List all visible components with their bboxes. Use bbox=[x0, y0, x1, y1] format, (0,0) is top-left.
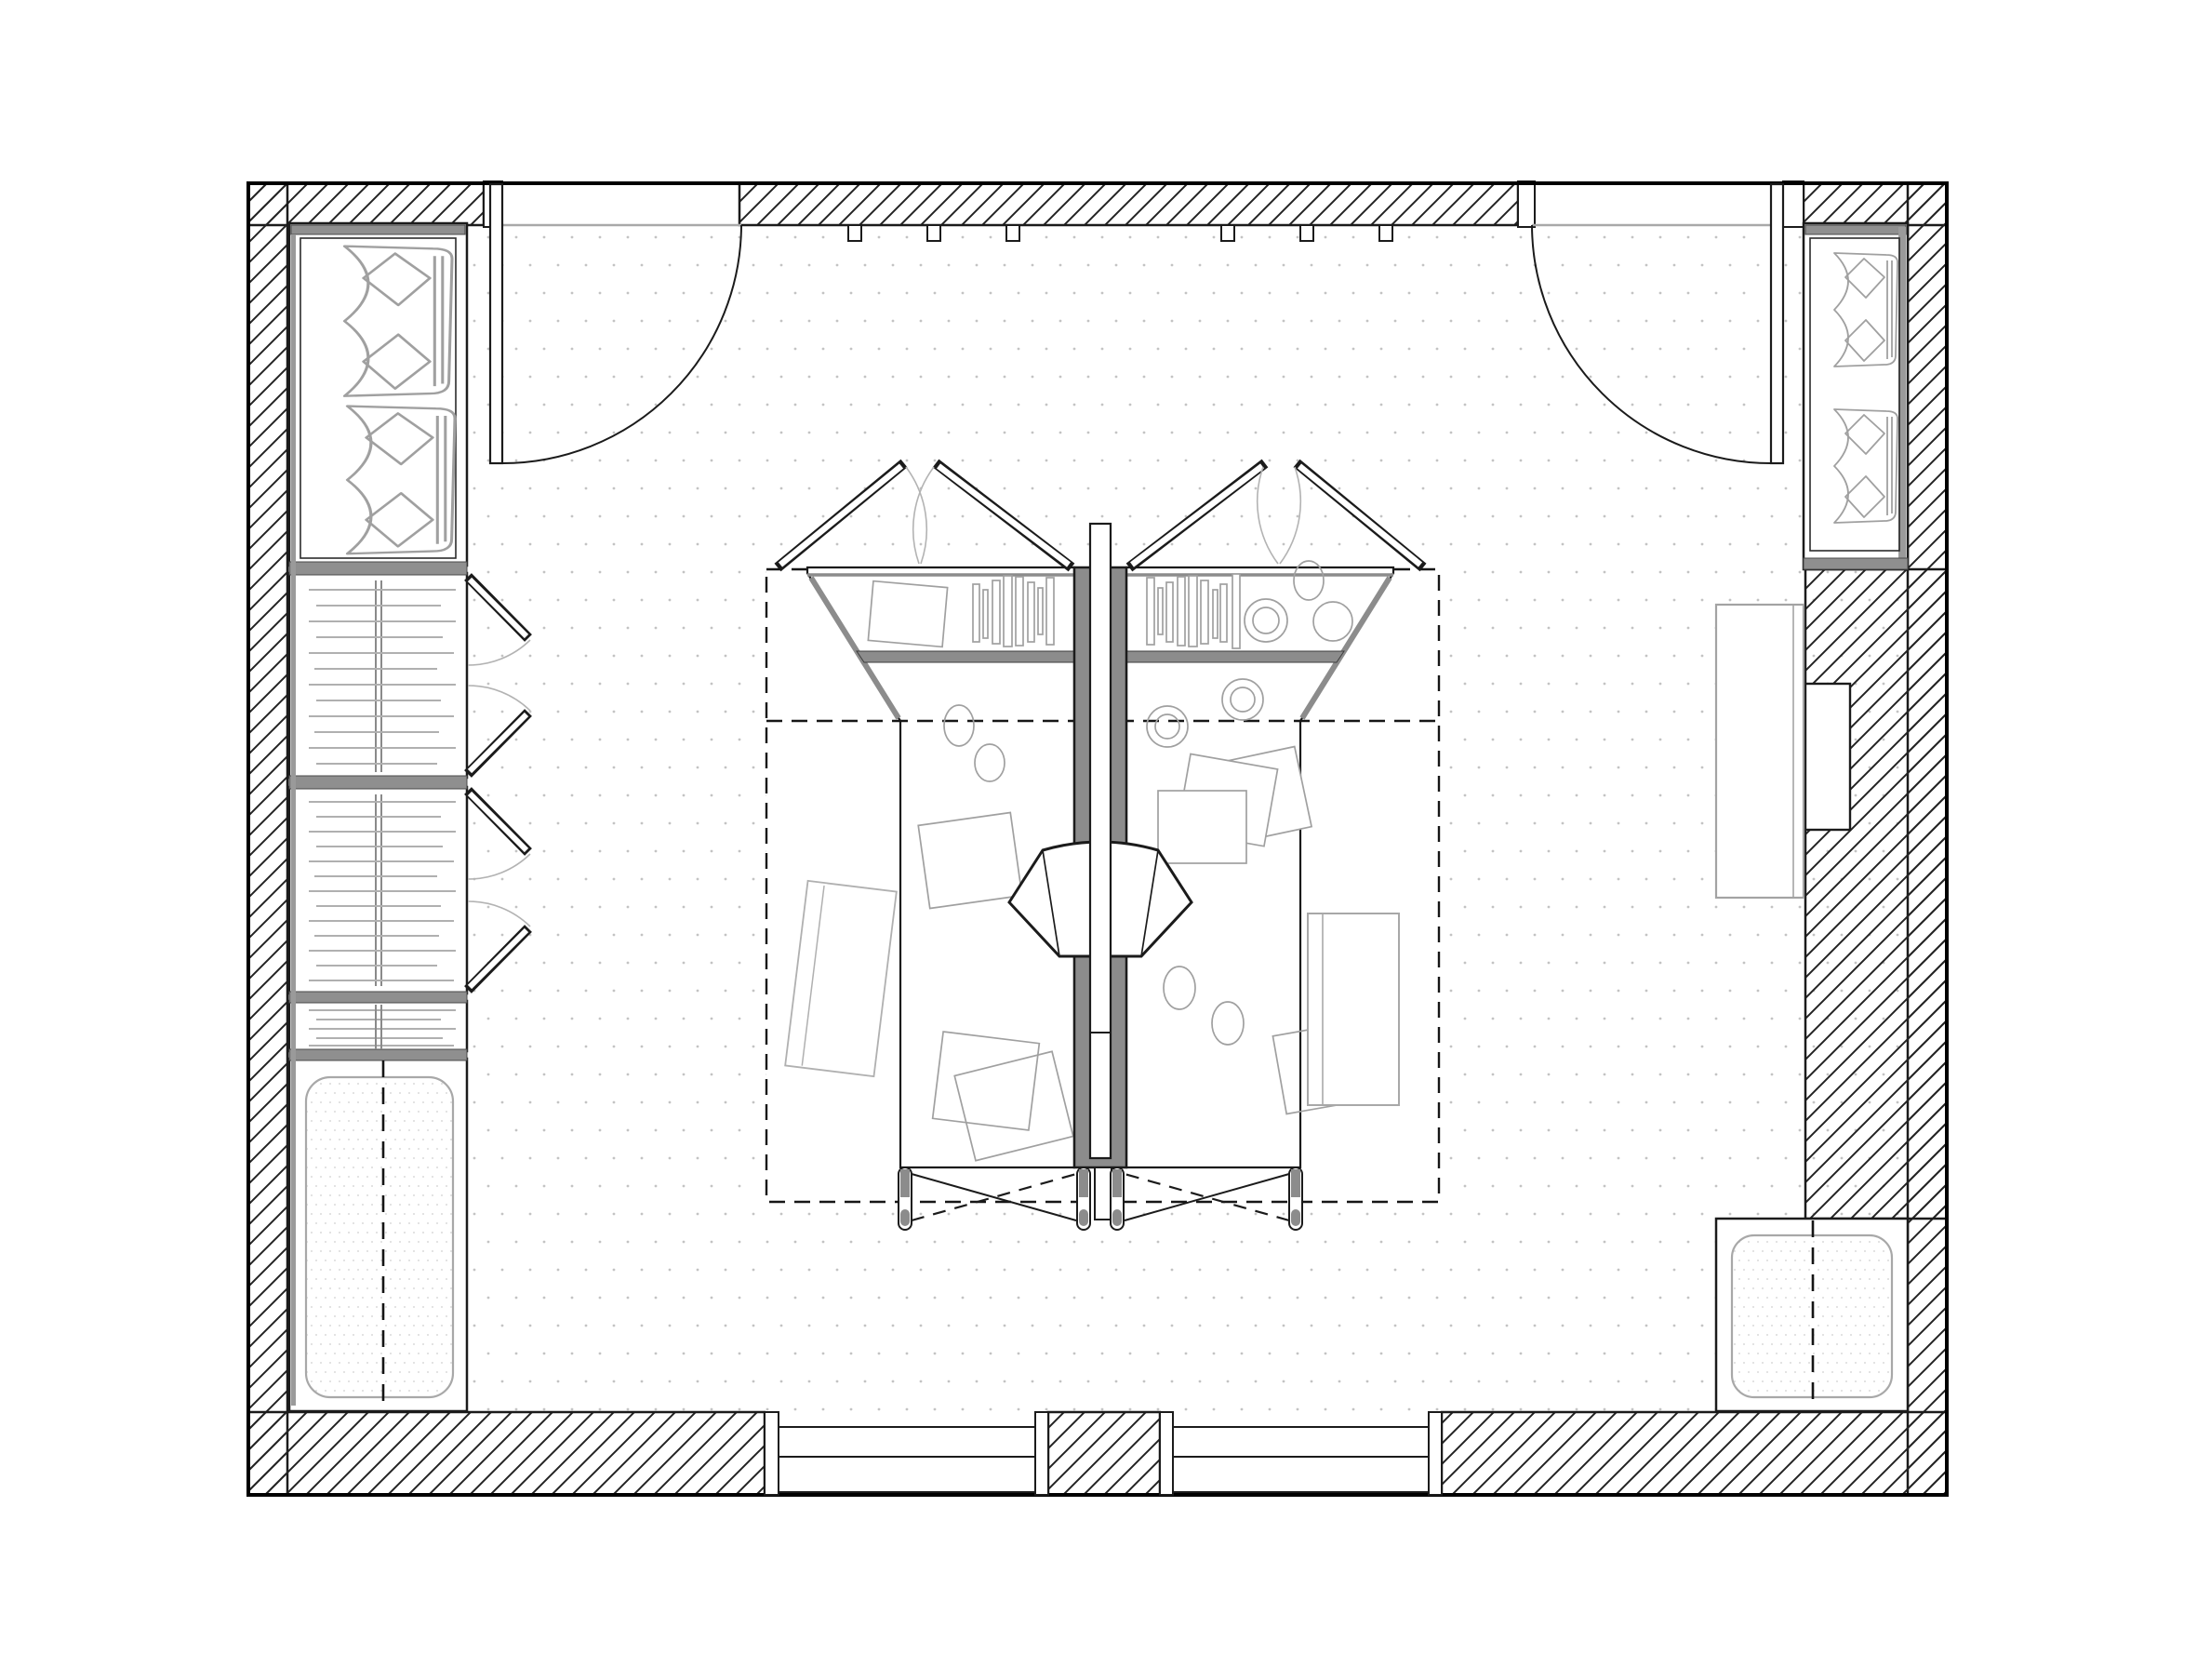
window-frame bbox=[1429, 1412, 1442, 1495]
wall-bottom-right bbox=[1442, 1412, 1947, 1495]
bench-mat bbox=[306, 1077, 453, 1397]
tray-divider-right bbox=[1126, 651, 1344, 662]
cabinet-divider bbox=[1804, 558, 1908, 569]
window-1 bbox=[779, 1427, 1035, 1492]
scattered-paper bbox=[1158, 791, 1246, 863]
cabinet-divider bbox=[289, 776, 467, 789]
wall-bottom-left bbox=[248, 1412, 765, 1495]
cabinet-divider bbox=[289, 562, 467, 575]
cabinet-accent-top bbox=[291, 225, 465, 234]
window-2 bbox=[1173, 1427, 1429, 1492]
desk-chair bbox=[1308, 913, 1399, 1105]
window-frame bbox=[1035, 1412, 1048, 1495]
floor-plan-canvas bbox=[0, 0, 2197, 1680]
cabinet-divider bbox=[289, 1049, 467, 1060]
wall-top-middle bbox=[739, 183, 1518, 225]
window-frame bbox=[765, 1412, 779, 1495]
spine-slot-gap bbox=[1095, 1167, 1112, 1220]
spine-slot bbox=[1090, 524, 1111, 1158]
cabinet-divider bbox=[289, 992, 467, 1003]
storage-box bbox=[868, 581, 947, 647]
console-desk bbox=[1716, 605, 1804, 898]
door-jamb-right-b bbox=[1783, 181, 1804, 227]
window-frame bbox=[1160, 1412, 1173, 1495]
cabinet-accent-side bbox=[291, 234, 296, 1406]
shelf-section bbox=[289, 1001, 467, 1051]
wall-left bbox=[248, 183, 287, 1495]
floor-plan-svg bbox=[0, 0, 2197, 1680]
door-jamb-right-a bbox=[1518, 181, 1535, 227]
wall-right-thick-section bbox=[1805, 569, 1947, 1219]
wall-bottom-pier bbox=[1048, 1412, 1160, 1495]
tray-divider-left bbox=[857, 651, 1074, 662]
door-leaf bbox=[490, 184, 502, 463]
door-leaf bbox=[1771, 184, 1783, 463]
cabinet-accent-top bbox=[1805, 225, 1906, 234]
wall-niche bbox=[1805, 684, 1850, 830]
